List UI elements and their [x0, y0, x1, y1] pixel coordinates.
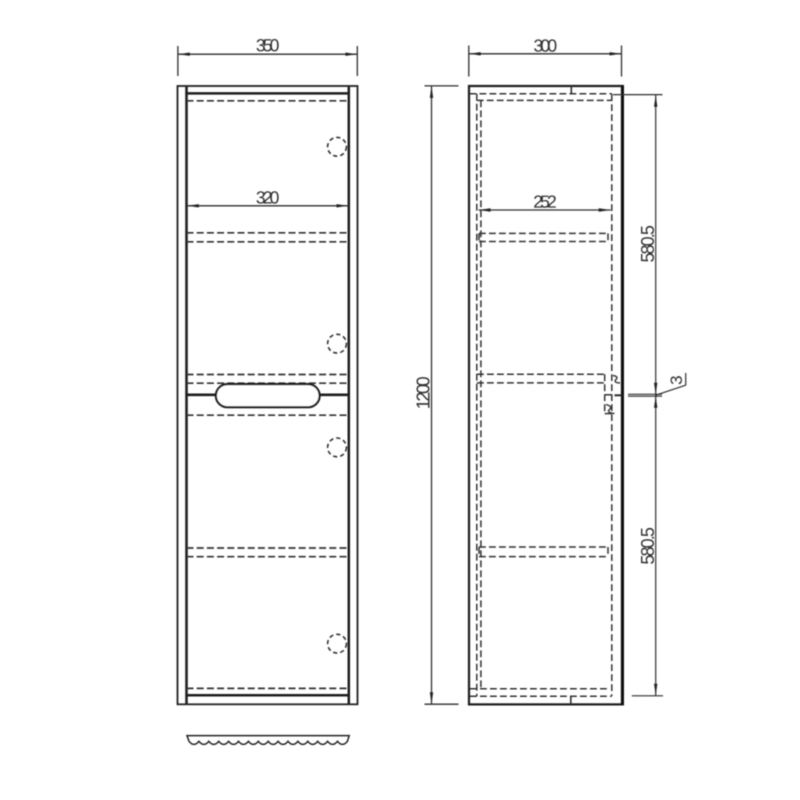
svg-text:580.5: 580.5 — [638, 225, 658, 262]
svg-text:350: 350 — [256, 35, 280, 55]
svg-text:320: 320 — [256, 187, 280, 207]
svg-text:300: 300 — [534, 36, 558, 56]
svg-text:1200: 1200 — [414, 376, 434, 409]
svg-text:252: 252 — [533, 192, 557, 212]
svg-text:3: 3 — [667, 375, 686, 384]
svg-text:580.5: 580.5 — [638, 527, 658, 565]
